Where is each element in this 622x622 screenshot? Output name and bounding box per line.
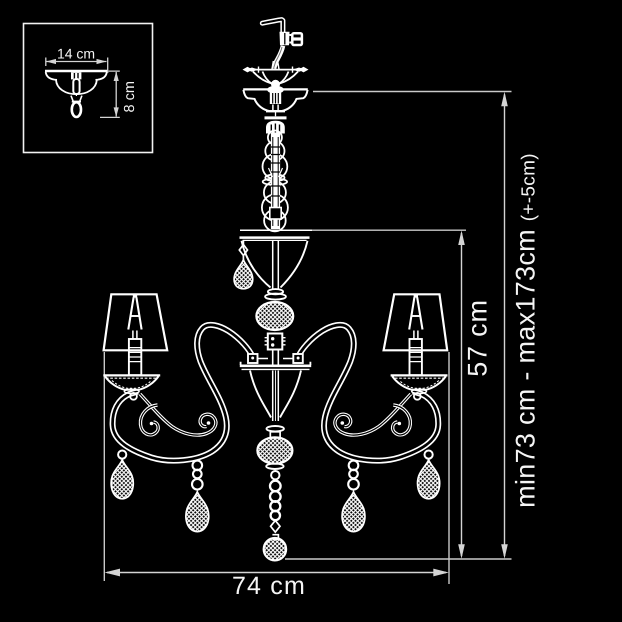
svg-text:8 cm: 8 cm	[122, 81, 138, 112]
svg-text:14 cm: 14 cm	[57, 46, 95, 62]
svg-text:57 cm: 57 cm	[463, 299, 493, 377]
svg-text:74 cm: 74 cm	[232, 572, 306, 600]
